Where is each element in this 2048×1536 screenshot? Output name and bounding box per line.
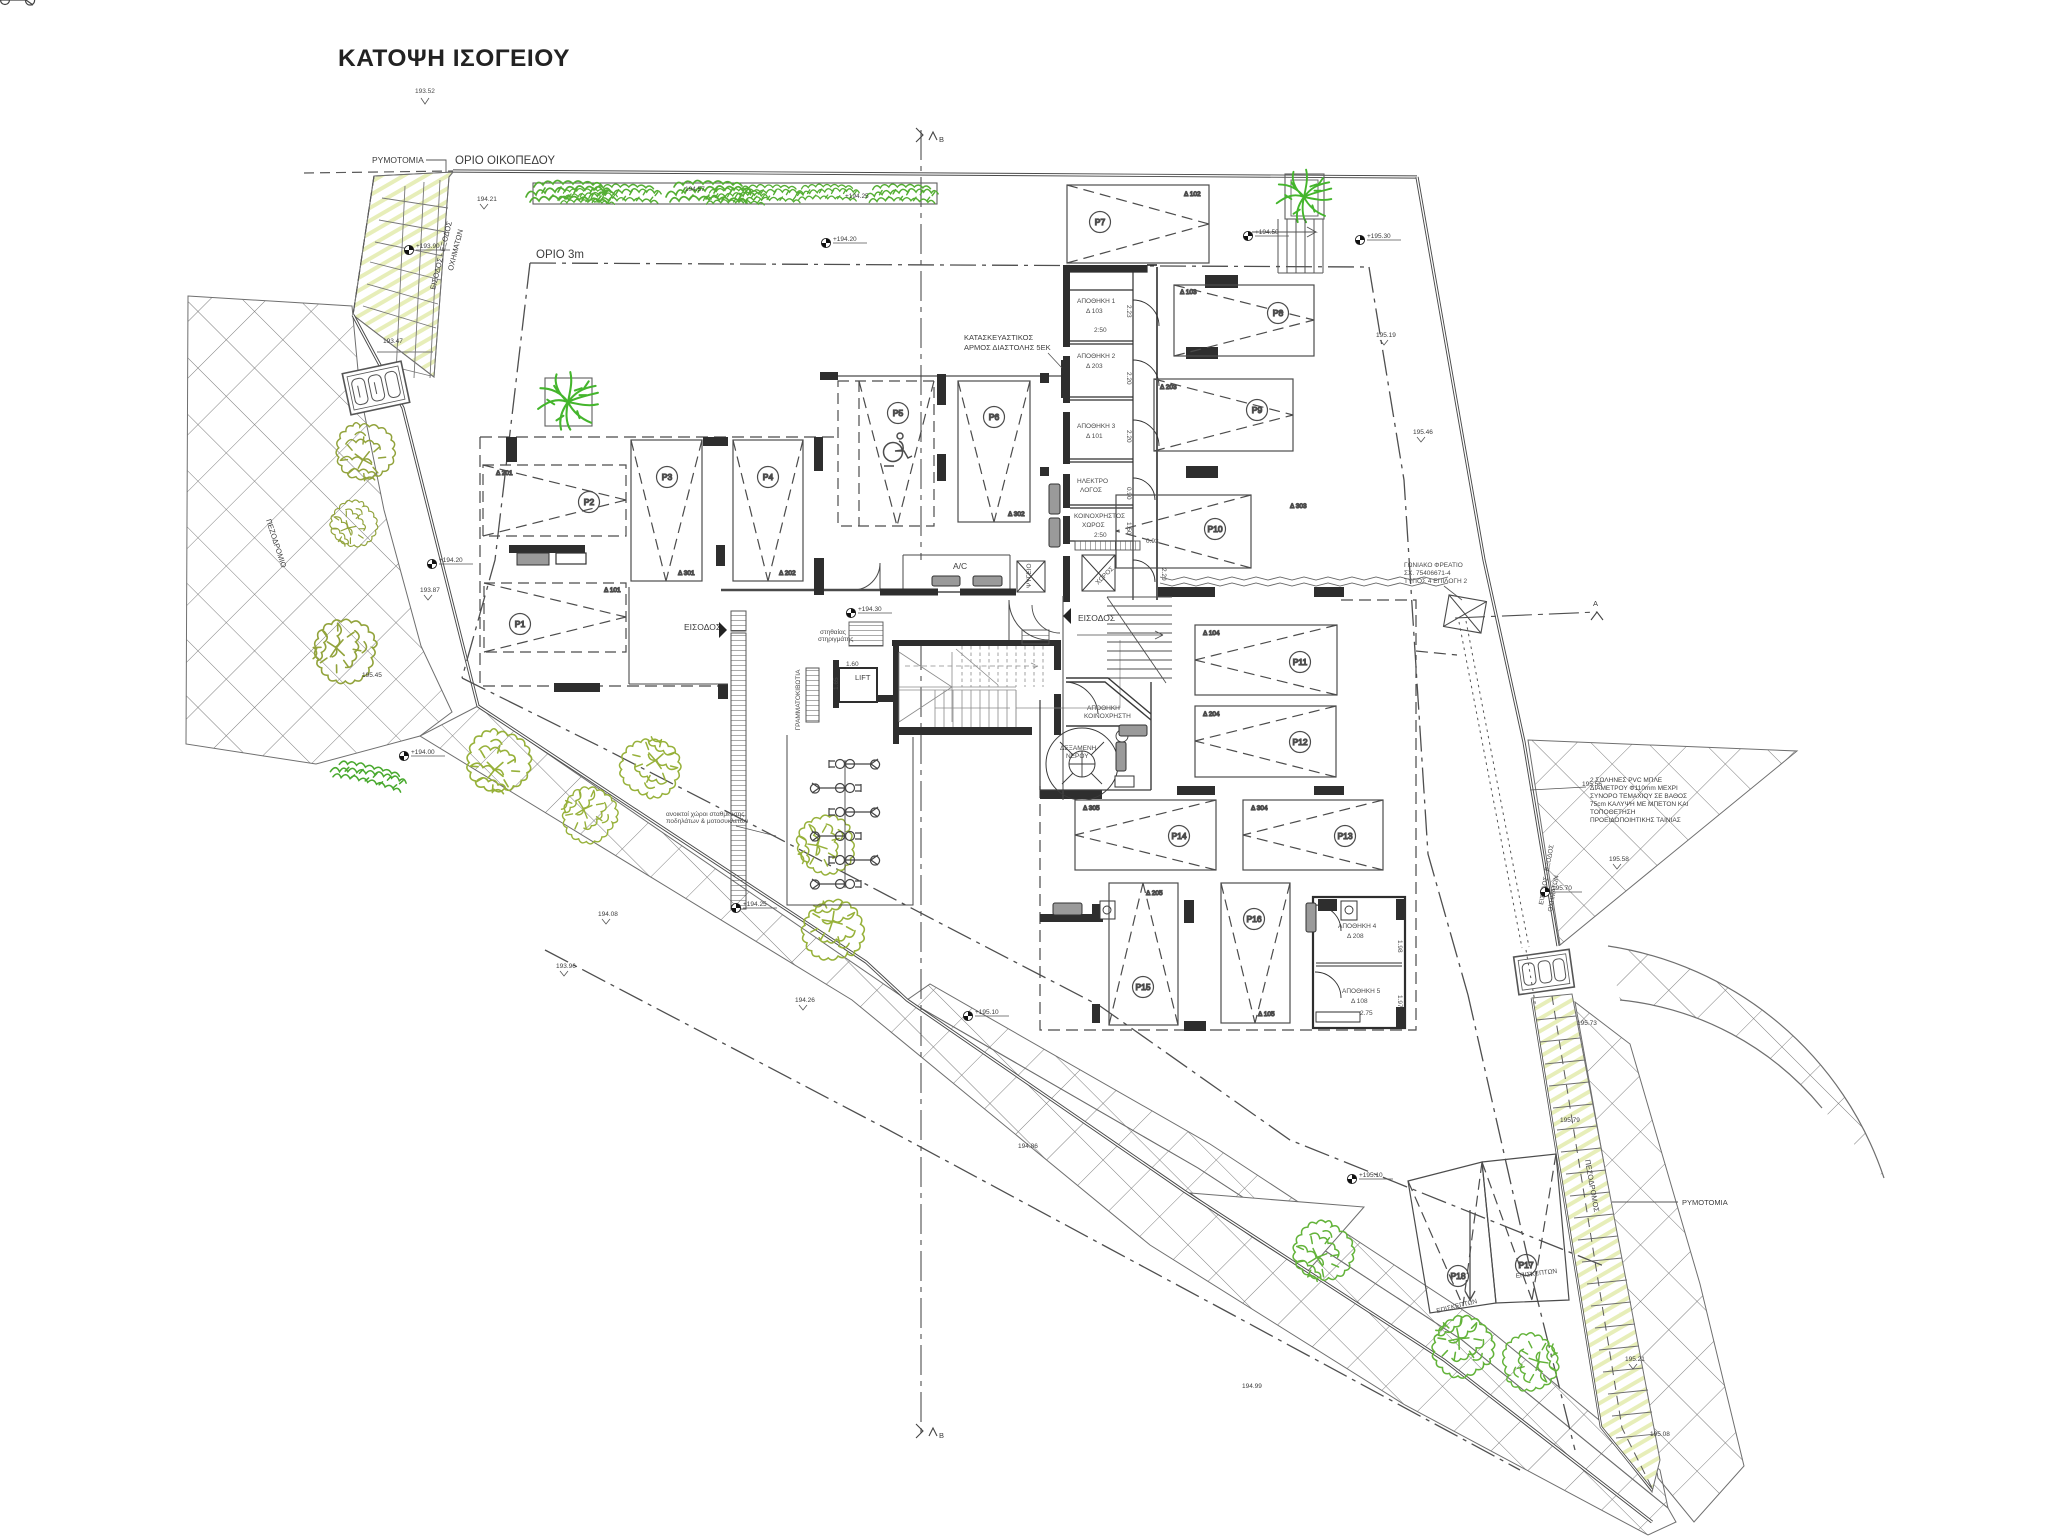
svg-text:+194.30: +194.30 xyxy=(858,606,882,613)
svg-text:2.23: 2.23 xyxy=(1125,305,1132,318)
svg-text:ΟΡΙΟ 3m: ΟΡΙΟ 3m xyxy=(536,249,584,261)
svg-text:ΑΠΟΘΗΚΗ 5: ΑΠΟΘΗΚΗ 5 xyxy=(1342,988,1381,995)
svg-text:Δ 101: Δ 101 xyxy=(604,587,621,594)
svg-text:195.08: 195.08 xyxy=(1650,1431,1670,1438)
svg-text:1.97: 1.97 xyxy=(1396,995,1403,1008)
svg-text:ΚΑΤΟΨΗ ΙΣΟΓΕΙΟΥ: ΚΑΤΟΨΗ ΙΣΟΓΕΙΟΥ xyxy=(338,45,570,72)
svg-text:1.98: 1.98 xyxy=(1396,940,1403,953)
svg-text:ΚΟΙΝΟΧΡΗΣΤΗ: ΚΟΙΝΟΧΡΗΣΤΗ xyxy=(1084,713,1131,720)
svg-text:195.46: 195.46 xyxy=(1413,429,1433,436)
svg-text:193.96: 193.96 xyxy=(556,963,576,970)
svg-text:+194.50: +194.50 xyxy=(1255,229,1279,236)
svg-text:195.58: 195.58 xyxy=(1609,856,1629,863)
svg-text:+194.20: +194.20 xyxy=(439,557,463,564)
svg-text:Δ 305: Δ 305 xyxy=(1083,805,1100,812)
svg-text:195.70: 195.70 xyxy=(1552,885,1572,892)
svg-text:195.56: 195.56 xyxy=(1582,781,1602,788)
svg-text:195.73: 195.73 xyxy=(1577,1020,1597,1027)
svg-text:ΣΧ. 75406671-4: ΣΧ. 75406671-4 xyxy=(1404,570,1451,577)
svg-text:194.08: 194.08 xyxy=(598,911,618,918)
svg-text:P4: P4 xyxy=(763,472,774,482)
svg-text:194.99: 194.99 xyxy=(1242,1383,1262,1390)
svg-text:Δ 101: Δ 101 xyxy=(1086,433,1103,440)
svg-text:75cm ΚΑΛΥΨΗ ΜΕ ΜΠΕΤΟΝ ΚΑΙ: 75cm ΚΑΛΥΨΗ ΜΕ ΜΠΕΤΟΝ ΚΑΙ xyxy=(1590,801,1689,808)
svg-text:ΠΡΟΕΙΔΟΠΟΙΗΤΙΚΗΣ ΤΑΙΝΙΑΣ: ΠΡΟΕΙΔΟΠΟΙΗΤΙΚΗΣ ΤΑΙΝΙΑΣ xyxy=(1590,817,1681,824)
svg-text:P15: P15 xyxy=(1135,982,1150,992)
svg-text:LIFT: LIFT xyxy=(855,673,871,682)
svg-text:A: A xyxy=(1593,599,1598,608)
svg-text:ΕΙΣΟΔΟΣ: ΕΙΣΟΔΟΣ xyxy=(684,622,721,632)
svg-text:+195.10: +195.10 xyxy=(1359,1172,1383,1179)
svg-text:P6: P6 xyxy=(989,412,1000,422)
svg-text:ΑΠΟΘΗΚΗ 1: ΑΠΟΘΗΚΗ 1 xyxy=(1077,298,1116,305)
svg-text:Δ 302: Δ 302 xyxy=(1008,511,1025,518)
svg-text:2:50: 2:50 xyxy=(1094,532,1107,539)
svg-text:193.52: 193.52 xyxy=(415,88,435,95)
svg-text:ΔΙΑΜΕΤΡΟΥ Φ110mm ΜΕΧΡΙ: ΔΙΑΜΕΤΡΟΥ Φ110mm ΜΕΧΡΙ xyxy=(1590,785,1678,792)
svg-text:P3: P3 xyxy=(662,472,673,482)
svg-text:1.60: 1.60 xyxy=(846,661,859,668)
svg-text:A/C: A/C xyxy=(953,561,967,571)
svg-text:Δ 208: Δ 208 xyxy=(1347,933,1364,940)
svg-text:195.79: 195.79 xyxy=(1560,1117,1580,1124)
svg-text:P12: P12 xyxy=(1292,737,1307,747)
svg-text:Δ 103: Δ 103 xyxy=(1180,289,1197,296)
svg-text:P14: P14 xyxy=(1171,831,1186,841)
svg-text:P16: P16 xyxy=(1246,914,1261,924)
svg-text:ΚΟΙΝΟΧΡΗΣΤΟΣ: ΚΟΙΝΟΧΡΗΣΤΟΣ xyxy=(1074,513,1125,520)
svg-text:2:50: 2:50 xyxy=(1094,327,1107,334)
svg-text:ΤΥΠΟΣ 4 ΕΠΙΛΟΓΗ 2: ΤΥΠΟΣ 4 ΕΠΙΛΟΓΗ 2 xyxy=(1404,578,1467,585)
svg-text:193.87: 193.87 xyxy=(420,587,440,594)
svg-text:P13: P13 xyxy=(1337,831,1352,841)
svg-text:194.21: 194.21 xyxy=(477,196,497,203)
svg-text:ΗΛΕΚΤΡΟ: ΗΛΕΚΤΡΟ xyxy=(1077,478,1108,485)
svg-text:στηθαίας: στηθαίας xyxy=(820,628,846,636)
svg-text:ΝΕΡΟΥ: ΝΕΡΟΥ xyxy=(1066,753,1089,760)
svg-text:ποδηλάτων & μοτοσυκλετών: ποδηλάτων & μοτοσυκλετών xyxy=(666,817,748,825)
svg-text:ανοικτοί χώροι σταθμευσης: ανοικτοί χώροι σταθμευσης xyxy=(666,810,744,818)
svg-text:Δ 201: Δ 201 xyxy=(496,470,513,477)
svg-text:1.65: 1.65 xyxy=(833,677,840,690)
svg-text:Δ 202: Δ 202 xyxy=(779,570,796,577)
svg-text:ΑΠΟΘΗΚΗ 3: ΑΠΟΘΗΚΗ 3 xyxy=(1077,423,1116,430)
svg-text:Δ 301: Δ 301 xyxy=(678,570,695,577)
svg-text:+195.30: +195.30 xyxy=(1367,233,1391,240)
svg-text:Δ 203: Δ 203 xyxy=(1086,363,1103,370)
svg-text:1.50: 1.50 xyxy=(1125,522,1132,535)
svg-text:Δ 102: Δ 102 xyxy=(1184,191,1201,198)
svg-text:+194.25: +194.25 xyxy=(845,193,869,200)
svg-text:P5: P5 xyxy=(893,408,904,418)
svg-text:P8: P8 xyxy=(1273,308,1284,318)
svg-text:ΛΟΓΟΣ: ΛΟΓΟΣ xyxy=(1080,487,1102,494)
svg-text:ΕΙΣΟΔΟΣ: ΕΙΣΟΔΟΣ xyxy=(1078,613,1115,623)
svg-text:Δ 303: Δ 303 xyxy=(1290,503,1307,510)
svg-text:195.21: 195.21 xyxy=(1625,1356,1645,1363)
svg-text:Δ 104: Δ 104 xyxy=(1203,630,1220,637)
svg-text:ΚΑΤΑΣΚΕΥΑΣΤΙΚΟΣ: ΚΑΤΑΣΚΕΥΑΣΤΙΚΟΣ xyxy=(964,333,1033,342)
svg-text:+195.10: +195.10 xyxy=(975,1009,999,1016)
svg-text:ΟΡΙΟ ΟΙΚΟΠΕΔΟΥ: ΟΡΙΟ ΟΙΚΟΠΕΔΟΥ xyxy=(455,155,555,167)
svg-text:194.26: 194.26 xyxy=(795,997,815,1004)
svg-text:+194.00: +194.00 xyxy=(411,749,435,756)
svg-text:Δ 203: Δ 203 xyxy=(1160,384,1177,391)
svg-text:P9: P9 xyxy=(1252,405,1263,415)
svg-text:2.20: 2.20 xyxy=(1125,372,1132,385)
svg-text:ΑΠΟΘΗΚΗ: ΑΠΟΘΗΚΗ xyxy=(1087,705,1120,712)
svg-text:P7: P7 xyxy=(1095,217,1106,227)
svg-text:στηριγμάτης: στηριγμάτης xyxy=(818,635,853,643)
svg-text:0.90: 0.90 xyxy=(1125,487,1132,500)
svg-text:ΤΟΠΟΘΕΤΗΣΗ: ΤΟΠΟΘΕΤΗΣΗ xyxy=(1590,809,1636,816)
svg-text:P10: P10 xyxy=(1207,524,1222,534)
svg-text:P17: P17 xyxy=(1518,1260,1533,1270)
svg-text:Δ 103: Δ 103 xyxy=(1086,308,1103,315)
svg-text:P11: P11 xyxy=(1293,657,1308,667)
svg-text:ΑΡΜΟΣ ΔΙΑΣΤΟΛΗΣ 5ΕΚ: ΑΡΜΟΣ ΔΙΑΣΤΟΛΗΣ 5ΕΚ xyxy=(964,343,1051,352)
svg-text:ΑΠΟΘΗΚΗ 4: ΑΠΟΘΗΚΗ 4 xyxy=(1338,923,1377,930)
svg-text:P1: P1 xyxy=(515,619,526,629)
svg-text:193.47: 193.47 xyxy=(383,338,403,345)
svg-text:Δ 108: Δ 108 xyxy=(1351,998,1368,1005)
svg-text:ΨΥΓΕΙΟ: ΨΥΓΕΙΟ xyxy=(1026,563,1033,588)
svg-text:Δ 105: Δ 105 xyxy=(1258,1011,1275,1018)
svg-text:Δ 205: Δ 205 xyxy=(1146,890,1163,897)
svg-text:ΡΥΜΟΤΟΜΙΑ: ΡΥΜΟΤΟΜΙΑ xyxy=(1682,1198,1728,1207)
svg-text:B: B xyxy=(939,135,944,144)
svg-text:0.93: 0.93 xyxy=(1146,538,1159,545)
svg-text:2.75: 2.75 xyxy=(1360,1010,1373,1017)
svg-text:194.86: 194.86 xyxy=(1018,1143,1038,1150)
svg-text:ΧΩΡΟΣ: ΧΩΡΟΣ xyxy=(1082,522,1105,529)
svg-text:P18: P18 xyxy=(1450,1271,1465,1281)
svg-text:195.19: 195.19 xyxy=(1376,332,1396,339)
svg-text:ΓΡΑΜΜΑΤΟΚΙΒΩΤΙΑ: ΓΡΑΜΜΑΤΟΚΙΒΩΤΙΑ xyxy=(795,669,802,730)
svg-text:2.20: 2.20 xyxy=(1160,568,1167,581)
svg-text:ΑΠΟΘΗΚΗ 2: ΑΠΟΘΗΚΗ 2 xyxy=(1077,353,1116,360)
svg-text:ΡΥΜΟΤΟΜΙΑ: ΡΥΜΟΤΟΜΙΑ xyxy=(372,155,424,165)
svg-text:+194.20: +194.20 xyxy=(833,236,857,243)
svg-text:P2: P2 xyxy=(584,497,595,507)
svg-text:ΣΥΝΟΡΟ ΤΕΜΑΧΙΟΥ ΣΕ ΒΑΘΟΣ: ΣΥΝΟΡΟ ΤΕΜΑΧΙΟΥ ΣΕ ΒΑΘΟΣ xyxy=(1590,793,1687,800)
svg-text:ΔΕΞΑΜΕΝΗ: ΔΕΞΑΜΕΝΗ xyxy=(1060,745,1097,752)
svg-text:195.45: 195.45 xyxy=(362,672,382,679)
svg-text:2.20: 2.20 xyxy=(1125,430,1132,443)
svg-text:Δ 204: Δ 204 xyxy=(1203,711,1220,718)
svg-text:+193.90: +193.90 xyxy=(416,243,440,250)
svg-text:ΓΩΝΙΑΚΟ ΦΡΕΑΤΙΟ: ΓΩΝΙΑΚΟ ΦΡΕΑΤΙΟ xyxy=(1404,562,1463,569)
svg-text:B: B xyxy=(939,1431,944,1440)
svg-text:Δ 304: Δ 304 xyxy=(1251,805,1268,812)
svg-text:194.57: 194.57 xyxy=(685,186,705,193)
svg-text:+194.25: +194.25 xyxy=(743,901,767,908)
